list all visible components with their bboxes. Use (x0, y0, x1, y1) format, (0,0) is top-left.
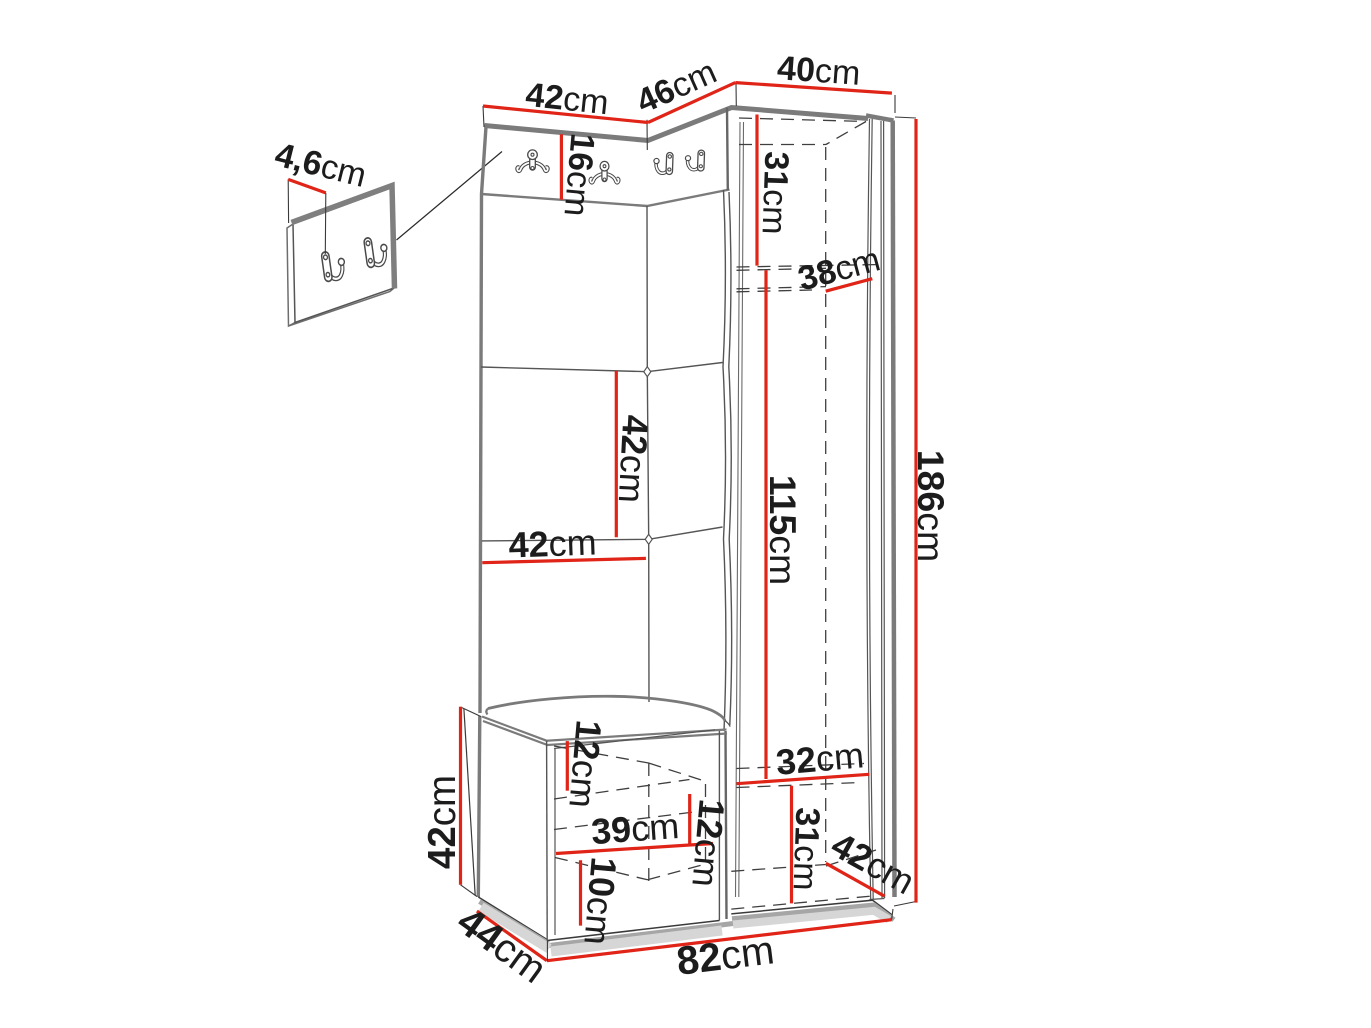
svg-text:12cm: 12cm (561, 718, 610, 809)
svg-text:40cm: 40cm (776, 49, 862, 93)
svg-text:115cm: 115cm (762, 475, 804, 586)
svg-text:16cm: 16cm (556, 132, 601, 218)
svg-text:10cm: 10cm (576, 855, 625, 946)
svg-text:31cm: 31cm (786, 807, 827, 891)
svg-text:42cm: 42cm (421, 775, 464, 869)
svg-text:42cm: 42cm (611, 414, 657, 504)
svg-text:12cm: 12cm (684, 797, 733, 888)
svg-text:31cm: 31cm (755, 151, 796, 235)
svg-text:186cm: 186cm (910, 450, 952, 563)
svg-text:42cm: 42cm (508, 521, 597, 565)
svg-text:39cm: 39cm (590, 805, 681, 852)
svg-text:32cm: 32cm (774, 734, 865, 783)
